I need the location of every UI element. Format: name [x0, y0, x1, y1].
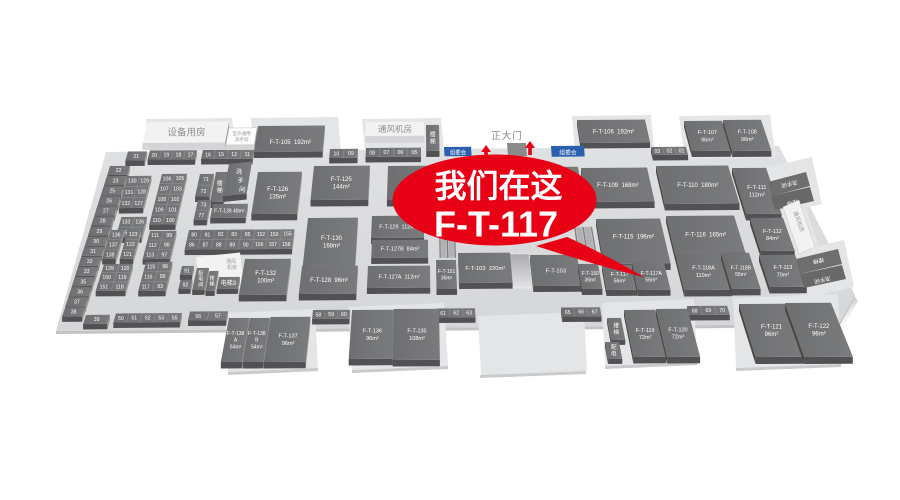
svg-text:122: 122: [126, 242, 135, 248]
svg-text:152: 152: [257, 232, 266, 238]
svg-text:72: 72: [201, 189, 207, 195]
svg-text:F-T-137: F-T-137: [278, 334, 297, 340]
svg-text:158: 158: [282, 242, 291, 248]
svg-text:F-T-150: F-T-150: [581, 271, 599, 277]
svg-text:100: 100: [166, 218, 175, 224]
svg-text:F-T-139 48m²: F-T-139 48m²: [214, 209, 245, 215]
svg-text:03: 03: [655, 149, 661, 155]
svg-text:20: 20: [151, 153, 157, 159]
svg-text:F-T-132: F-T-132: [255, 271, 277, 277]
svg-text:F-T-103: F-T-103: [546, 268, 566, 274]
svg-text:28: 28: [100, 219, 106, 225]
svg-text:144m²: 144m²: [333, 185, 350, 191]
svg-text:25: 25: [109, 188, 115, 194]
svg-text:通风机房: 通风机房: [378, 124, 412, 134]
svg-text:F-T-107: F-T-107: [698, 130, 717, 136]
svg-text:机房: 机房: [227, 264, 237, 271]
svg-text:19: 19: [164, 153, 170, 159]
svg-text:88: 88: [216, 243, 222, 249]
svg-text:156: 156: [255, 242, 264, 248]
svg-text:67: 67: [592, 310, 598, 316]
svg-text:F-T-111: F-T-111: [747, 185, 766, 191]
svg-text:56m²: 56m²: [645, 278, 657, 284]
svg-text:正大门: 正大门: [491, 130, 523, 142]
svg-text:133: 133: [122, 220, 131, 226]
svg-text:71: 71: [203, 177, 209, 183]
svg-text:56m²: 56m²: [614, 279, 626, 285]
svg-text:F-T-106 192m²: F-T-106 192m²: [593, 129, 634, 135]
svg-text:室外通用: 室外通用: [232, 130, 251, 137]
svg-text:66: 66: [578, 310, 584, 316]
svg-text:96m²: 96m²: [282, 341, 295, 347]
svg-text:F-T-112: F-T-112: [763, 229, 782, 235]
svg-text:26: 26: [106, 199, 112, 205]
svg-text:F-T-115 196m²: F-T-115 196m²: [613, 234, 654, 240]
svg-text:58: 58: [316, 312, 322, 318]
svg-text:51: 51: [131, 316, 137, 322]
svg-text:112m²: 112m²: [749, 193, 765, 199]
svg-text:96m²: 96m²: [741, 137, 754, 143]
svg-text:F-T-130: F-T-130: [321, 236, 343, 242]
svg-text:168m²: 168m²: [323, 244, 340, 250]
svg-text:59: 59: [328, 312, 334, 318]
svg-text:梯: 梯: [430, 138, 436, 146]
svg-text:F-T-128 96m²: F-T-128 96m²: [310, 278, 348, 284]
svg-text:36m²: 36m²: [441, 276, 453, 282]
svg-text:109: 109: [155, 208, 164, 214]
svg-text:97: 97: [162, 252, 168, 258]
svg-text:梯: 梯: [209, 281, 214, 288]
svg-text:间: 间: [198, 282, 203, 289]
svg-text:洗手间: 洗手间: [235, 136, 249, 143]
svg-text:F-T-117: F-T-117: [611, 272, 629, 278]
svg-text:131: 131: [125, 190, 134, 196]
svg-text:F-T-116 165m²: F-T-116 165m²: [685, 232, 726, 238]
svg-text:30: 30: [93, 239, 99, 245]
svg-text:84m²: 84m²: [766, 236, 779, 242]
svg-text:10: 10: [334, 151, 340, 157]
svg-text:102: 102: [171, 197, 180, 203]
svg-text:70: 70: [719, 308, 725, 314]
svg-text:楼: 楼: [613, 322, 619, 330]
svg-text:95: 95: [160, 274, 166, 280]
svg-text:F-T-135: F-T-135: [407, 329, 426, 335]
svg-text:157: 157: [269, 242, 278, 248]
svg-text:127: 127: [134, 201, 143, 207]
svg-text:54m²: 54m²: [230, 344, 242, 350]
svg-text:电梯3: 电梯3: [221, 279, 237, 287]
svg-text:56: 56: [195, 314, 201, 320]
svg-text:18: 18: [176, 153, 182, 159]
svg-text:F-T-110 180m²: F-T-110 180m²: [677, 183, 718, 189]
svg-text:F-T-118B: F-T-118B: [731, 265, 752, 271]
svg-text:57: 57: [215, 314, 221, 320]
svg-text:组委会: 组委会: [559, 148, 577, 156]
svg-text:82: 82: [218, 232, 224, 238]
svg-text:100m²: 100m²: [257, 279, 274, 285]
svg-text:52: 52: [145, 316, 151, 322]
svg-text:86: 86: [189, 243, 195, 249]
svg-text:36: 36: [77, 289, 83, 295]
svg-text:108m²: 108m²: [409, 336, 425, 342]
svg-text:121: 121: [123, 252, 132, 258]
svg-text:103: 103: [173, 187, 182, 193]
svg-text:38: 38: [71, 310, 77, 316]
svg-text:F-T-103 220m²: F-T-103 220m²: [465, 266, 505, 272]
svg-text:112: 112: [148, 243, 156, 249]
svg-text:37: 37: [74, 300, 80, 306]
svg-text:F-T-119: F-T-119: [636, 328, 655, 334]
svg-text:F-T-125: F-T-125: [331, 177, 353, 183]
svg-text:107: 107: [160, 187, 169, 193]
svg-text:F-T-120: F-T-120: [668, 327, 687, 333]
svg-text:153: 153: [270, 232, 279, 238]
svg-text:128: 128: [137, 190, 146, 196]
svg-text:69: 69: [705, 308, 711, 314]
svg-text:138: 138: [106, 252, 115, 258]
svg-text:F-T-105 192m²: F-T-105 192m²: [270, 140, 311, 146]
svg-text:106: 106: [163, 176, 172, 182]
svg-text:楼: 楼: [430, 131, 436, 139]
svg-text:12: 12: [231, 152, 237, 158]
svg-text:65: 65: [565, 310, 571, 316]
svg-text:96m²: 96m²: [701, 137, 714, 143]
svg-text:62: 62: [453, 311, 459, 317]
svg-text:116: 116: [144, 274, 152, 280]
svg-text:11: 11: [245, 152, 250, 158]
svg-text:15: 15: [218, 152, 224, 158]
svg-text:126: 126: [135, 219, 144, 225]
svg-text:111: 111: [151, 233, 159, 239]
svg-text:119: 119: [118, 275, 126, 281]
svg-text:55: 55: [172, 315, 178, 321]
svg-text:72m²: 72m²: [639, 335, 652, 341]
svg-text:F-T-109 168m²: F-T-109 168m²: [597, 183, 638, 189]
svg-text:70m²: 70m²: [777, 272, 790, 278]
svg-text:31: 31: [90, 249, 96, 255]
svg-text:96: 96: [162, 264, 168, 270]
svg-text:85: 85: [245, 232, 251, 238]
svg-text:09: 09: [348, 151, 354, 157]
svg-text:101: 101: [168, 207, 177, 213]
svg-text:我们在这: 我们在这: [434, 168, 562, 204]
svg-text:楼: 楼: [217, 180, 223, 188]
svg-text:F-T-127A 112m²: F-T-127A 112m²: [379, 275, 420, 281]
svg-text:08: 08: [369, 150, 375, 156]
svg-text:23: 23: [113, 178, 119, 184]
svg-text:F-T-121: F-T-121: [761, 325, 783, 331]
svg-text:33: 33: [84, 269, 90, 275]
svg-text:F-T-118A: F-T-118A: [692, 266, 715, 272]
svg-text:81: 81: [205, 232, 211, 238]
svg-text:123: 123: [129, 232, 138, 238]
svg-text:137: 137: [109, 242, 118, 248]
svg-text:36m²: 36m²: [584, 278, 596, 284]
svg-text:61: 61: [440, 311, 446, 317]
svg-text:113: 113: [146, 253, 154, 259]
svg-text:129: 129: [140, 178, 149, 184]
svg-text:83: 83: [231, 232, 237, 238]
svg-text:通风: 通风: [226, 258, 236, 265]
svg-text:110m²: 110m²: [696, 273, 711, 279]
svg-text:27: 27: [103, 209, 109, 215]
svg-text:115: 115: [147, 264, 155, 270]
svg-text:93: 93: [157, 284, 163, 290]
svg-text:01: 01: [679, 149, 685, 155]
svg-text:98: 98: [164, 243, 170, 249]
svg-text:91: 91: [184, 268, 190, 274]
svg-text:118: 118: [116, 284, 124, 290]
svg-text:89: 89: [230, 242, 236, 248]
svg-text:108: 108: [157, 197, 166, 203]
svg-text:90: 90: [243, 242, 249, 248]
svg-text:06: 06: [398, 150, 404, 156]
svg-text:35: 35: [81, 279, 87, 285]
svg-text:53: 53: [158, 316, 164, 322]
svg-text:87: 87: [203, 243, 209, 249]
svg-text:配: 配: [611, 344, 617, 351]
svg-text:F-T-127B 84m²: F-T-127B 84m²: [381, 247, 420, 253]
svg-text:139: 139: [105, 266, 114, 272]
svg-text:96m²: 96m²: [366, 336, 379, 342]
svg-text:50: 50: [118, 316, 124, 322]
svg-text:F-T-138: F-T-138: [227, 331, 245, 337]
svg-text:110: 110: [152, 218, 160, 224]
svg-text:99: 99: [166, 233, 172, 239]
svg-text:F-T-138: F-T-138: [248, 331, 266, 337]
svg-text:F-T-108: F-T-108: [738, 130, 757, 136]
svg-text:150: 150: [102, 275, 111, 281]
svg-text:63: 63: [466, 311, 472, 317]
svg-text:72m²: 72m²: [672, 334, 685, 340]
svg-text:136: 136: [112, 232, 121, 238]
svg-text:105: 105: [176, 176, 185, 182]
svg-text:120: 120: [121, 266, 130, 272]
svg-text:梯: 梯: [613, 328, 619, 336]
svg-text:电: 电: [611, 350, 617, 358]
svg-text:F-T-113: F-T-113: [773, 265, 792, 271]
svg-text:F-T-117A: F-T-117A: [641, 271, 663, 277]
svg-text:68: 68: [692, 308, 698, 314]
svg-text:17: 17: [188, 153, 194, 159]
svg-text:F-T-117: F-T-117: [434, 204, 558, 245]
svg-text:07: 07: [384, 150, 390, 156]
svg-text:32: 32: [87, 259, 93, 265]
svg-text:22: 22: [116, 168, 122, 174]
svg-text:73: 73: [201, 203, 207, 209]
svg-text:135m²: 135m²: [269, 195, 286, 201]
svg-text:96m²: 96m²: [812, 332, 826, 338]
svg-text:39: 39: [94, 317, 100, 323]
svg-text:29: 29: [97, 229, 103, 235]
svg-text:155: 155: [283, 232, 292, 238]
svg-text:117: 117: [142, 284, 150, 290]
svg-text:60: 60: [341, 312, 347, 318]
svg-text:54m²: 54m²: [251, 344, 263, 350]
svg-text:F-T-151: F-T-151: [438, 269, 456, 275]
svg-text:21: 21: [133, 154, 139, 160]
svg-text:16: 16: [205, 152, 211, 158]
svg-text:梯: 梯: [217, 187, 223, 195]
svg-text:02: 02: [667, 149, 673, 155]
svg-text:F-T-122: F-T-122: [808, 324, 830, 330]
svg-text:组委会: 组委会: [450, 148, 467, 156]
svg-text:设备用房: 设备用房: [167, 127, 205, 139]
svg-text:F-T-136: F-T-136: [363, 329, 382, 335]
svg-text:130: 130: [128, 179, 137, 185]
svg-text:05: 05: [412, 150, 418, 156]
svg-text:132: 132: [121, 201, 130, 207]
svg-text:92: 92: [183, 282, 189, 288]
svg-text:80: 80: [191, 232, 197, 238]
svg-text:96m²: 96m²: [765, 332, 779, 338]
svg-text:55m²: 55m²: [735, 272, 747, 278]
svg-text:77: 77: [198, 213, 204, 219]
svg-text:F-T-126: F-T-126: [267, 187, 289, 193]
svg-text:151: 151: [100, 285, 109, 291]
